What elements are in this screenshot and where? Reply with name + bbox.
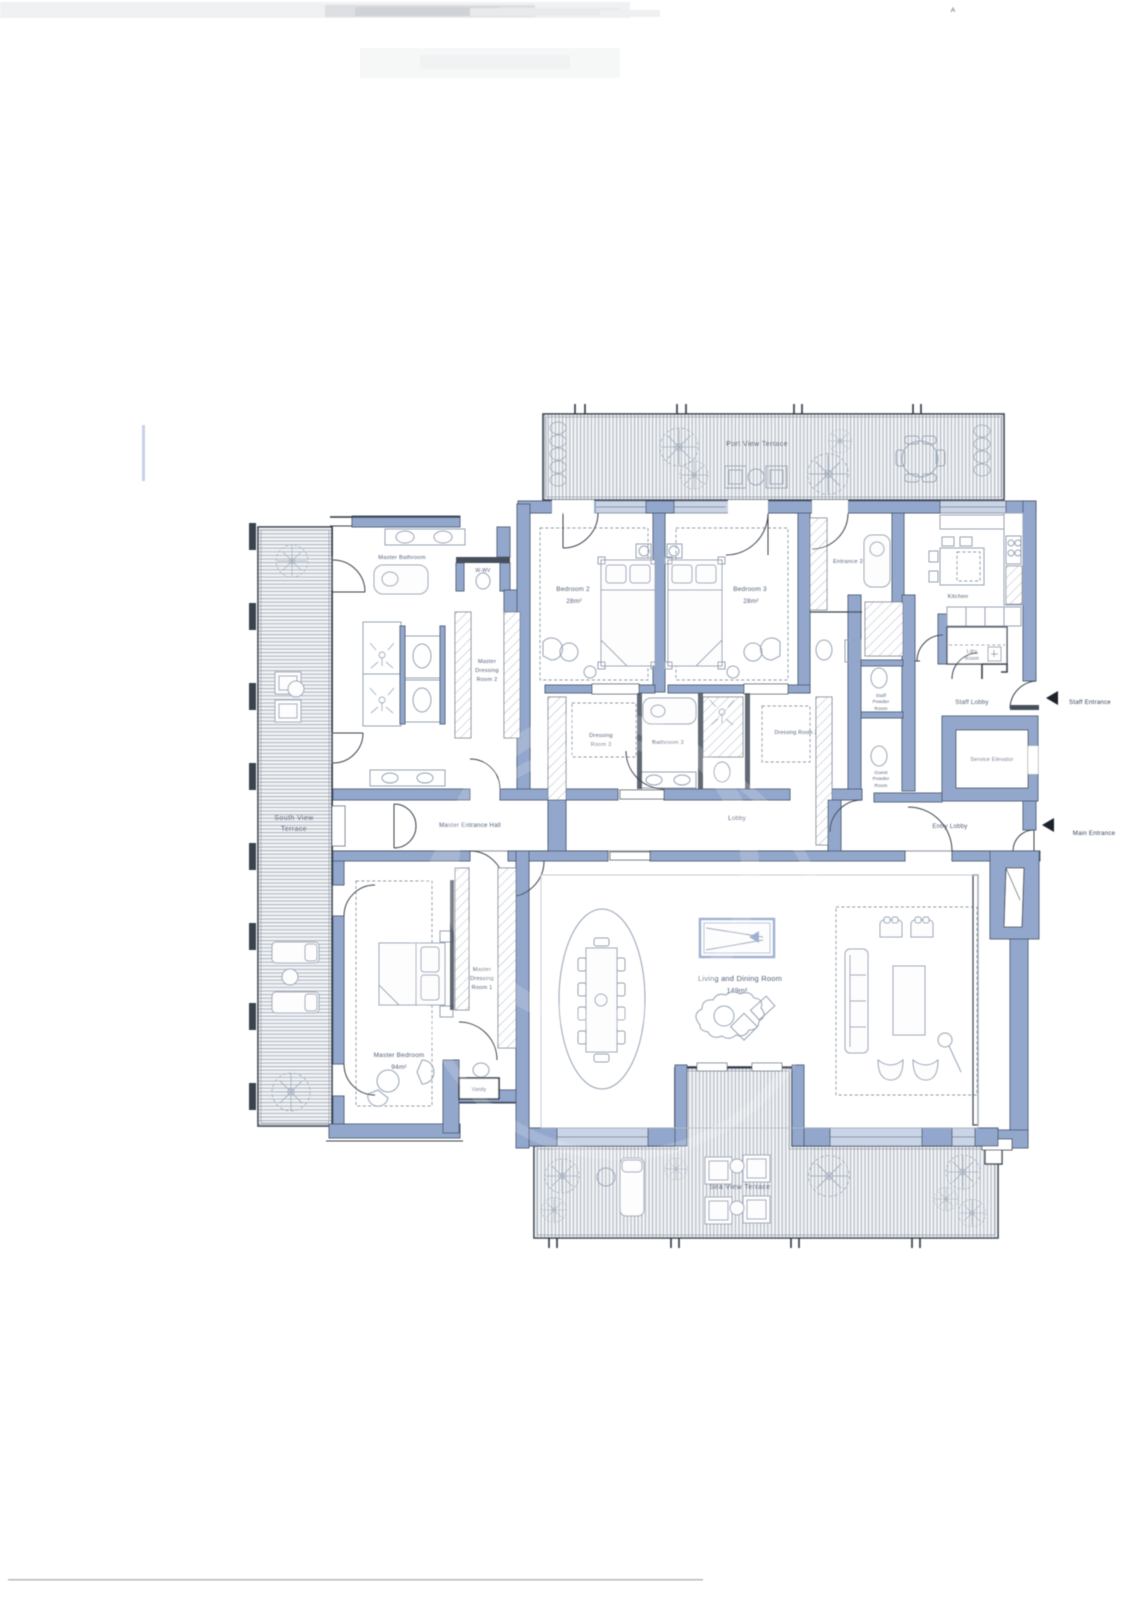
svg-text:A: A	[951, 7, 956, 14]
svg-text:Staff Entrance: Staff Entrance	[1069, 699, 1111, 706]
svg-text:Sea View Terrace: Sea View Terrace	[709, 1184, 770, 1191]
svg-text:Entrance 2: Entrance 2	[833, 559, 863, 565]
svg-text:Staff: Staff	[876, 693, 887, 698]
svg-text:Room: Room	[874, 783, 887, 788]
svg-text:Dressing: Dressing	[475, 668, 499, 674]
svg-text:Port View Terrace: Port View Terrace	[726, 441, 788, 448]
svg-text:Dressing: Dressing	[589, 733, 613, 739]
svg-text:Master Bedroom: Master Bedroom	[374, 1052, 425, 1059]
svg-text:Room 2: Room 2	[477, 677, 498, 683]
svg-text:Powder: Powder	[873, 776, 890, 781]
svg-text:Main Entrance: Main Entrance	[1073, 830, 1116, 837]
svg-text:Ldry: Ldry	[967, 649, 978, 655]
svg-text:Room 1: Room 1	[472, 985, 493, 991]
svg-text:Master: Master	[478, 659, 496, 665]
svg-text:Staff Lobby: Staff Lobby	[955, 699, 989, 706]
svg-text:Terrace: Terrace	[281, 826, 307, 833]
svg-text:28m²: 28m²	[566, 598, 582, 605]
svg-text:149m²: 149m²	[727, 988, 748, 995]
svg-text:Dressing Room 2: Dressing Room 2	[774, 730, 817, 736]
svg-text:Bedroom 2: Bedroom 2	[556, 586, 590, 593]
svg-text:Kitchen: Kitchen	[948, 594, 969, 600]
svg-text:Master Bathroom: Master Bathroom	[378, 555, 425, 561]
svg-text:94m²: 94m²	[391, 1064, 407, 1071]
svg-text:Service Elevator: Service Elevator	[970, 757, 1013, 763]
svg-text:Powder: Powder	[873, 699, 890, 704]
svg-text:Room: Room	[965, 656, 979, 662]
svg-text:Guest: Guest	[874, 770, 888, 775]
svg-text:South View: South View	[274, 815, 314, 822]
svg-text:W-WV: W-WV	[475, 568, 491, 574]
svg-text:28m²: 28m²	[743, 598, 759, 605]
svg-text:Entry Lobby: Entry Lobby	[932, 823, 968, 830]
svg-text:Room: Room	[874, 706, 887, 711]
svg-text:Bedroom 3: Bedroom 3	[733, 586, 767, 593]
